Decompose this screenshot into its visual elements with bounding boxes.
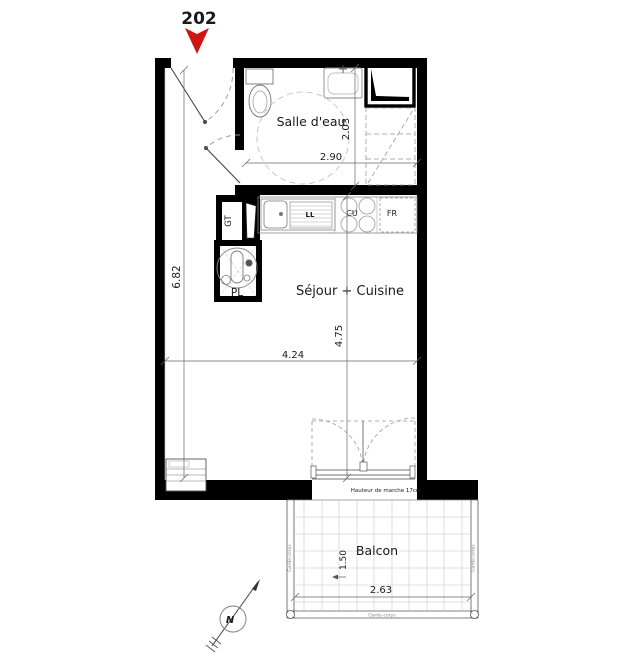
cooktop-label: CU bbox=[346, 209, 358, 218]
technical-duct-label: GT bbox=[224, 214, 234, 226]
fridge-label: FR bbox=[387, 209, 398, 218]
shower-area bbox=[366, 108, 415, 185]
balcony bbox=[287, 500, 479, 619]
bathroom-label: Salle d'eau bbox=[277, 114, 346, 129]
threshold-note: Hauteur de marche 17cm bbox=[351, 488, 422, 494]
dim-balcony-width: 2.63 bbox=[370, 585, 392, 596]
unit-number-label: 202 bbox=[181, 9, 217, 29]
dimension-lines bbox=[161, 64, 475, 601]
window bbox=[166, 459, 206, 491]
entry-arrow-icon bbox=[185, 28, 209, 54]
washing-machine-label: LL bbox=[306, 211, 315, 219]
dim-bathroom-depth: 2.03 bbox=[341, 118, 352, 140]
duct-shaft bbox=[366, 64, 414, 106]
bathroom-door bbox=[204, 135, 240, 183]
dim-living-width: 4.24 bbox=[282, 350, 304, 361]
entry-door bbox=[171, 68, 233, 124]
gt-door-leaf bbox=[246, 203, 256, 238]
north-label: N bbox=[226, 615, 235, 626]
living-kitchen-label: Séjour + Cuisine bbox=[296, 284, 404, 299]
dim-apartment-depth: 6.82 bbox=[171, 265, 183, 288]
floor-plan-canvas: 202 bbox=[0, 0, 640, 655]
railing-label-right: Garde-corps bbox=[471, 544, 477, 572]
railing-label-left: Garde-corps bbox=[287, 544, 293, 572]
french-door bbox=[311, 418, 415, 479]
closet-label: PL bbox=[231, 287, 243, 299]
balcony-label: Balcon bbox=[356, 543, 398, 558]
washbasin bbox=[324, 65, 362, 98]
dim-living-depth: 4.75 bbox=[334, 325, 345, 347]
floor-plan-drawing: 202 bbox=[0, 0, 640, 655]
toilet bbox=[246, 69, 273, 117]
railing-label-bottom: Garde-corps bbox=[368, 613, 396, 619]
dim-balcony-depth: 1.50 bbox=[339, 550, 349, 570]
dim-bathroom-width: 2.90 bbox=[320, 152, 342, 163]
